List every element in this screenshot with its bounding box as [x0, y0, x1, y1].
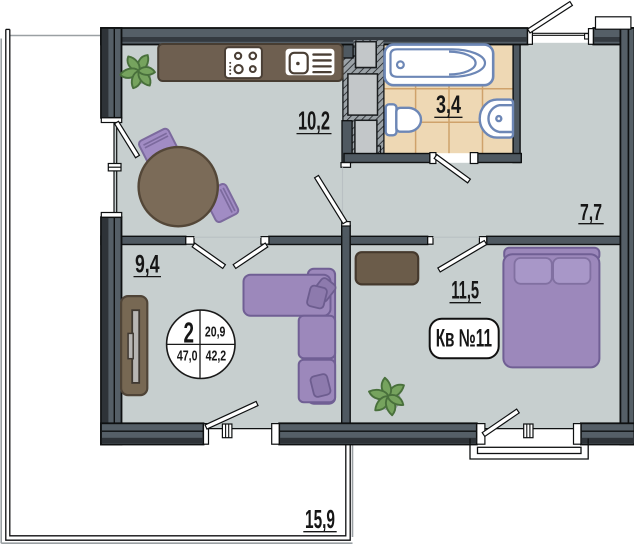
svg-text:20,9: 20,9 — [205, 323, 226, 340]
svg-text:7,7: 7,7 — [580, 199, 602, 225]
svg-text:10,2: 10,2 — [298, 106, 330, 136]
svg-text:2: 2 — [184, 318, 195, 350]
svg-text:Кв №11: Кв №11 — [436, 325, 492, 353]
svg-text:11,5: 11,5 — [451, 277, 479, 305]
svg-text:15,9: 15,9 — [305, 504, 335, 534]
svg-text:3,4: 3,4 — [436, 91, 461, 119]
svg-text:47,0: 47,0 — [177, 348, 198, 365]
svg-text:9,4: 9,4 — [135, 250, 160, 278]
svg-text:42,2: 42,2 — [206, 348, 227, 365]
